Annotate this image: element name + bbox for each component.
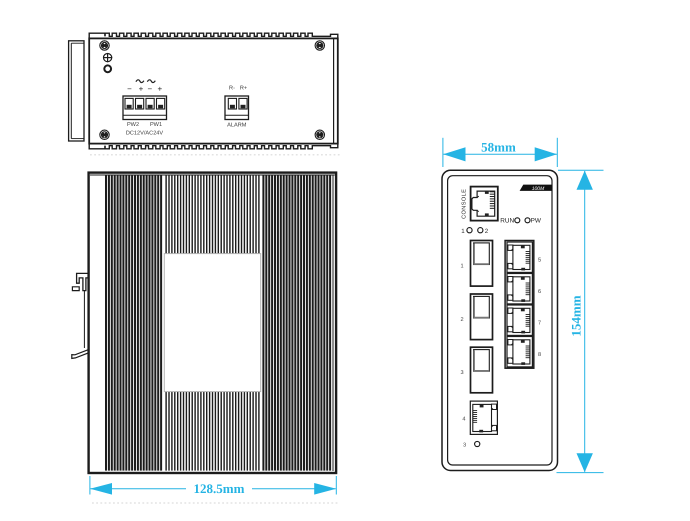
svg-text:58mm: 58mm bbox=[481, 139, 516, 154]
svg-text:4: 4 bbox=[462, 417, 465, 423]
svg-text:−: − bbox=[127, 85, 132, 94]
svg-text:CONSOLE: CONSOLE bbox=[462, 189, 468, 219]
svg-text:128.5mm: 128.5mm bbox=[194, 481, 245, 496]
svg-text:7: 7 bbox=[538, 321, 541, 327]
svg-text:+: + bbox=[139, 85, 144, 94]
svg-text:ALARM: ALARM bbox=[227, 123, 247, 129]
svg-text:8: 8 bbox=[538, 352, 541, 358]
svg-text:154mm: 154mm bbox=[569, 295, 584, 336]
svg-text:2: 2 bbox=[460, 317, 463, 323]
svg-text:PW: PW bbox=[531, 218, 542, 225]
svg-text:6: 6 bbox=[538, 289, 541, 295]
svg-text:PW1: PW1 bbox=[150, 122, 162, 128]
svg-text:RUN: RUN bbox=[500, 218, 514, 225]
svg-text:R-: R- bbox=[229, 86, 235, 92]
svg-text:2: 2 bbox=[485, 228, 489, 235]
svg-text:PW2: PW2 bbox=[127, 122, 139, 128]
svg-text:3: 3 bbox=[463, 443, 466, 449]
svg-text:DC12V/AC24V: DC12V/AC24V bbox=[126, 130, 164, 137]
svg-text:1: 1 bbox=[461, 228, 465, 235]
svg-text:100M: 100M bbox=[532, 186, 545, 192]
svg-text:1: 1 bbox=[460, 264, 463, 270]
svg-text:+: + bbox=[157, 85, 162, 94]
svg-text:R+: R+ bbox=[240, 86, 247, 92]
svg-text:5: 5 bbox=[538, 258, 541, 264]
svg-text:−: − bbox=[147, 85, 152, 94]
svg-text:3: 3 bbox=[460, 370, 463, 376]
